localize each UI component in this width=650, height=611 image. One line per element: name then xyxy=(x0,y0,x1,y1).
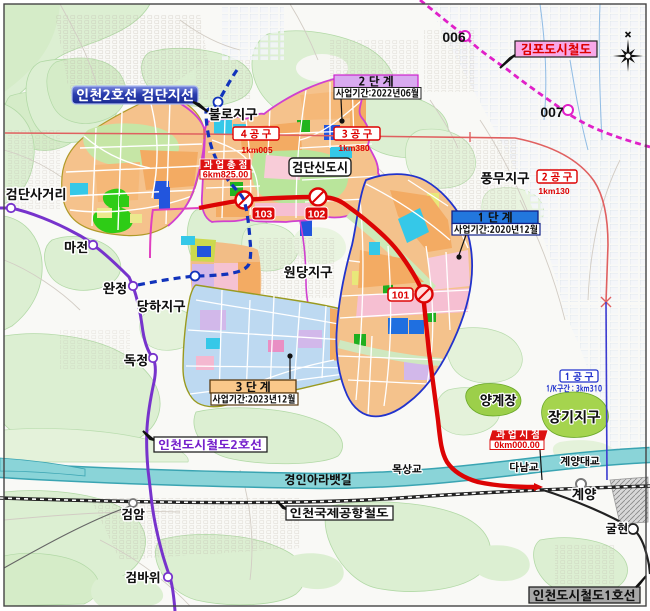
svg-text:007: 007 xyxy=(540,104,564,120)
svg-text:006: 006 xyxy=(442,29,466,45)
svg-text:103: 103 xyxy=(255,209,273,221)
svg-text:0km000.00: 0km000.00 xyxy=(494,440,540,450)
svg-text:101: 101 xyxy=(392,290,410,302)
svg-text:102: 102 xyxy=(308,209,326,221)
svg-text:6km825.00: 6km825.00 xyxy=(203,170,249,180)
svg-text:1km380: 1km380 xyxy=(338,143,369,153)
svg-text:1km005: 1km005 xyxy=(241,145,272,155)
svg-text:1km130: 1km130 xyxy=(538,186,569,196)
